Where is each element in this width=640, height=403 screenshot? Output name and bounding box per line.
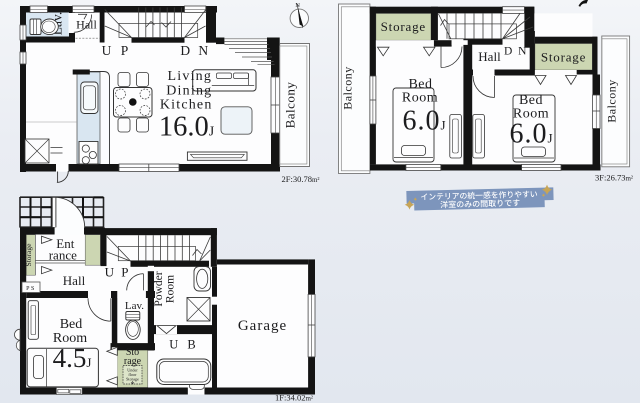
svg-text:2F:30.78m²: 2F:30.78m² <box>281 174 319 184</box>
svg-text:Hall: Hall <box>63 273 86 288</box>
svg-text:4.5J: 4.5J <box>53 343 92 373</box>
svg-text:U P: U P <box>105 265 131 280</box>
svg-text:Bed: Bed <box>60 317 83 332</box>
svg-text:rance: rance <box>49 248 77 263</box>
svg-text:PS: PS <box>26 286 36 292</box>
svg-text:U B: U B <box>169 338 199 352</box>
svg-text:6.0J: 6.0J <box>402 106 446 137</box>
svg-text:Dining: Dining <box>166 84 212 99</box>
svg-text:3F:26.73m²: 3F:26.73m² <box>595 173 633 183</box>
svg-text:rage: rage <box>124 356 142 367</box>
svg-text:6.0J: 6.0J <box>509 119 553 150</box>
svg-text:Storage: Storage <box>126 377 139 382</box>
svg-text:Storage: Storage <box>541 50 586 65</box>
svg-text:Room: Room <box>402 91 438 106</box>
svg-text:Lav.: Lav. <box>125 300 144 312</box>
svg-text:16.0J: 16.0J <box>159 112 215 143</box>
svg-text:D N: D N <box>180 43 210 58</box>
svg-text:Room: Room <box>165 275 177 303</box>
svg-text:D N: D N <box>504 46 528 58</box>
svg-text:Garage: Garage <box>238 318 287 334</box>
svg-text:Storage: Storage <box>24 243 33 267</box>
svg-text:Hall: Hall <box>478 49 501 64</box>
svg-text:Hall: Hall <box>76 18 97 32</box>
svg-text:U P: U P <box>102 43 132 58</box>
svg-text:Powder: Powder <box>153 271 165 306</box>
svg-text:1F:34.02m²: 1F:34.02m² <box>275 393 313 403</box>
svg-text:Balcony: Balcony <box>605 79 619 123</box>
svg-text:N: N <box>295 2 300 9</box>
svg-text:Kitchen: Kitchen <box>160 98 213 113</box>
svg-text:Storage: Storage <box>381 19 426 34</box>
svg-text:Balcony: Balcony <box>341 66 355 110</box>
svg-text:Living: Living <box>168 69 213 84</box>
svg-text:Balcony: Balcony <box>283 82 298 129</box>
